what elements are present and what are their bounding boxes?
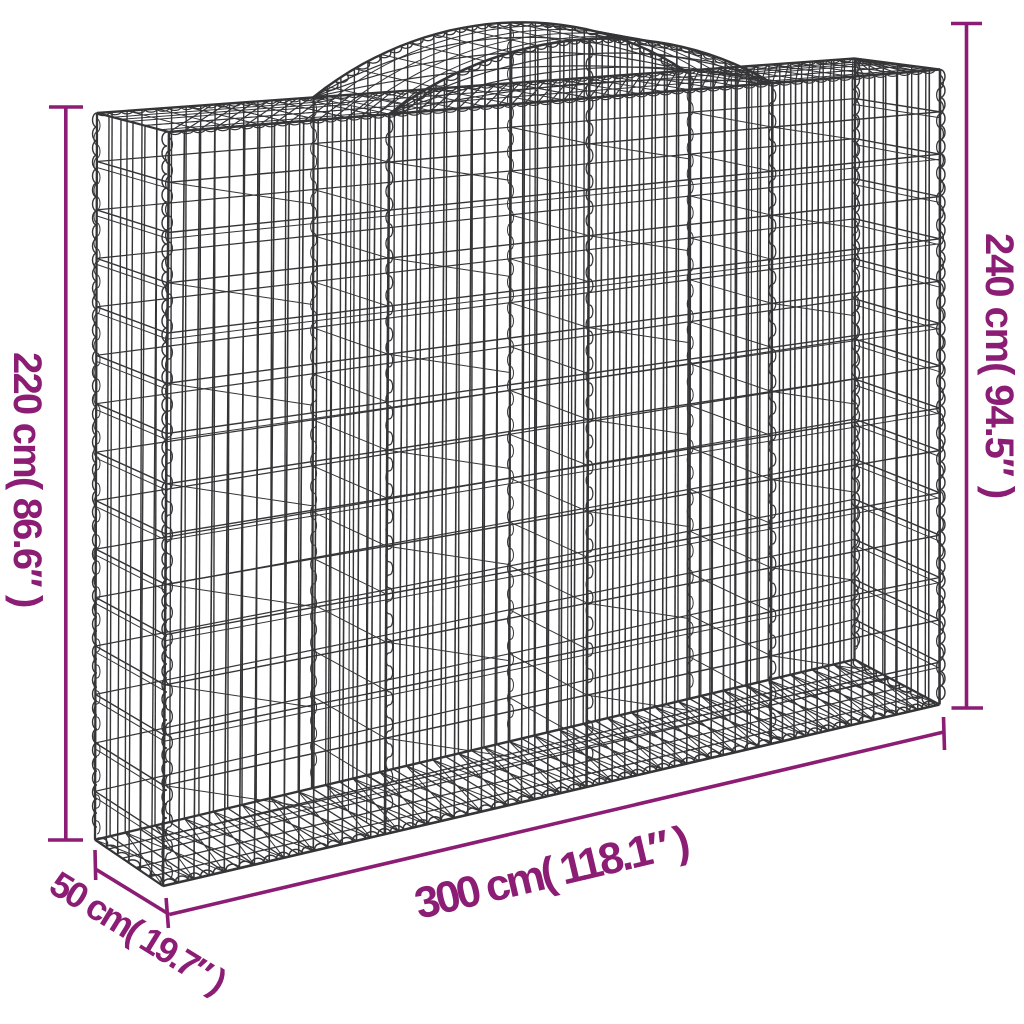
svg-text:240 cm( 94.5″ ): 240 cm( 94.5″ ) xyxy=(977,233,1021,498)
svg-text:220 cm( 86.6″ ): 220 cm( 86.6″ ) xyxy=(5,352,49,607)
